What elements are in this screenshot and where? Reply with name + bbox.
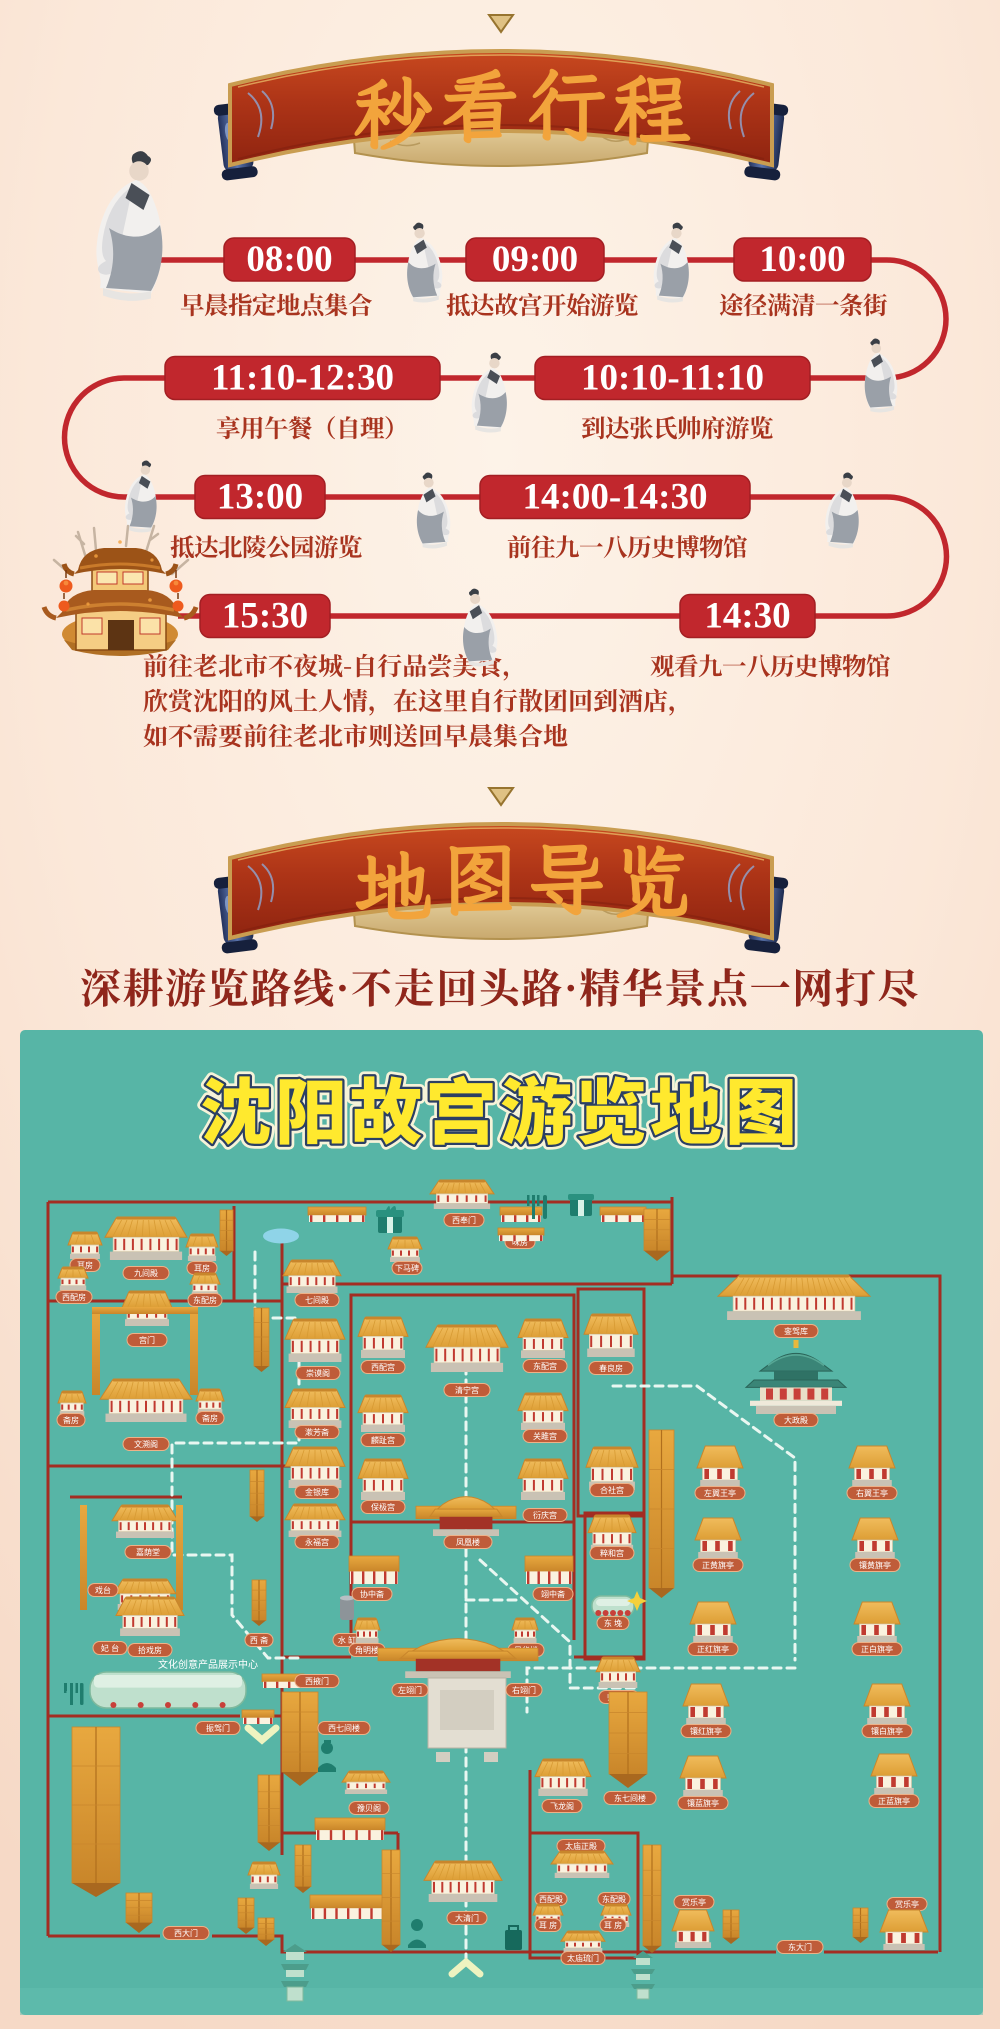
svg-text:11:10-12:30: 11:10-12:30	[211, 358, 394, 399]
svg-text:09:00: 09:00	[492, 239, 578, 280]
svg-text:崇谟阁: 崇谟阁	[306, 1368, 330, 1378]
svg-text:衍庆宫: 衍庆宫	[533, 1510, 557, 1520]
svg-text:太庙琉门: 太庙琉门	[567, 1953, 599, 1963]
svg-text:西配宫: 西配宫	[371, 1362, 395, 1372]
svg-text:永福宫: 永福宫	[305, 1537, 329, 1547]
svg-text:右翼王亭: 右翼王亭	[856, 1488, 888, 1498]
svg-text:春良房: 春良房	[599, 1363, 623, 1373]
svg-text:10:10-11:10: 10:10-11:10	[581, 358, 764, 399]
svg-text:镶白旗亭: 镶白旗亭	[871, 1726, 903, 1736]
svg-text:金银库: 金银库	[305, 1487, 329, 1497]
svg-text:赏乐亭: 赏乐亭	[682, 1897, 706, 1907]
svg-text:西配殿: 西配殿	[539, 1895, 563, 1904]
svg-text:銮驾库: 銮驾库	[784, 1326, 808, 1336]
svg-text:太庙正殿: 太庙正殿	[565, 1841, 597, 1851]
svg-text:保极宫: 保极宫	[371, 1502, 395, 1512]
svg-text:镶红旗亭: 镶红旗亭	[690, 1726, 722, 1736]
svg-text:斋房: 斋房	[202, 1413, 218, 1423]
svg-text:赏乐亭: 赏乐亭	[895, 1899, 919, 1909]
svg-text:东七间楼: 东七间楼	[614, 1793, 646, 1803]
svg-text:镶蓝旗亭: 镶蓝旗亭	[687, 1798, 719, 1808]
svg-text:下马碑: 下马碑	[395, 1263, 419, 1273]
svg-text:九间殿: 九间殿	[134, 1269, 158, 1278]
svg-text:七间殿: 七间殿	[305, 1296, 329, 1305]
svg-text:翊中斋: 翊中斋	[541, 1589, 565, 1599]
svg-text:飞龙阁: 飞龙阁	[550, 1801, 574, 1811]
svg-text:东配宫: 东配宫	[533, 1361, 557, 1371]
svg-text:妃 台: 妃 台	[101, 1643, 119, 1653]
svg-text:正黄旗亭: 正黄旗亭	[702, 1560, 734, 1570]
svg-text:斋房: 斋房	[63, 1415, 79, 1425]
svg-text:耳 房: 耳 房	[539, 1920, 557, 1930]
svg-text:角明楼: 角明楼	[355, 1645, 379, 1655]
svg-text:08:00: 08:00	[246, 239, 332, 280]
svg-text:东配殿: 东配殿	[602, 1894, 626, 1904]
svg-text:麟趾宫: 麟趾宫	[371, 1435, 395, 1445]
svg-text:合社宫: 合社宫	[600, 1485, 624, 1495]
svg-text:漱芳斋: 漱芳斋	[305, 1427, 329, 1437]
svg-text:耳 房: 耳 房	[604, 1920, 622, 1930]
svg-text:东 堍: 东 堍	[604, 1618, 622, 1628]
svg-text:镶黄旗亭: 镶黄旗亭	[859, 1560, 891, 1570]
svg-text:正白旗亭: 正白旗亭	[861, 1644, 893, 1654]
svg-text:大清门: 大清门	[455, 1913, 479, 1923]
svg-text:西 斋: 西 斋	[250, 1635, 268, 1645]
svg-text:拾戏房: 拾戏房	[138, 1645, 162, 1655]
svg-text:10:00: 10:00	[759, 239, 845, 280]
svg-text:戏台: 戏台	[95, 1585, 111, 1595]
svg-text:正蓝旗亭: 正蓝旗亭	[878, 1796, 910, 1806]
svg-text:西奉门: 西奉门	[452, 1215, 476, 1225]
svg-text:15:30: 15:30	[222, 596, 308, 637]
svg-text:西大门: 西大门	[174, 1928, 198, 1938]
svg-text:东配房: 东配房	[193, 1295, 217, 1305]
svg-text:文溯阁: 文溯阁	[134, 1439, 158, 1449]
svg-text:振驾门: 振驾门	[206, 1723, 230, 1733]
svg-text:西七间楼: 西七间楼	[328, 1723, 360, 1733]
svg-text:正红旗亭: 正红旗亭	[697, 1644, 729, 1654]
svg-text:东大门: 东大门	[788, 1942, 812, 1952]
svg-text:协中斋: 协中斋	[360, 1589, 384, 1599]
svg-text:13:00: 13:00	[217, 477, 303, 518]
svg-text:右翊门: 右翊门	[512, 1685, 536, 1695]
svg-text:14:30: 14:30	[704, 596, 790, 637]
svg-text:14:00-14:30: 14:00-14:30	[523, 477, 708, 518]
svg-text:凤凰楼: 凤凰楼	[456, 1537, 480, 1547]
svg-text:嘉荫堂: 嘉荫堂	[136, 1547, 160, 1557]
svg-text:左翊门: 左翊门	[398, 1685, 422, 1695]
svg-text:豫贝阁: 豫贝阁	[357, 1803, 381, 1813]
svg-text:左翼王亭: 左翼王亭	[704, 1488, 736, 1498]
svg-text:文化创意产品展示中心: 文化创意产品展示中心	[158, 1658, 258, 1671]
svg-text:粹和宫: 粹和宫	[600, 1548, 624, 1558]
svg-text:西掖门: 西掖门	[305, 1676, 329, 1686]
svg-text:耳房: 耳房	[194, 1263, 210, 1273]
svg-text:清宁宫: 清宁宫	[455, 1385, 479, 1395]
svg-text:西配房: 西配房	[62, 1292, 86, 1302]
svg-text:关雎宫: 关雎宫	[533, 1431, 557, 1441]
svg-text:大政殿: 大政殿	[784, 1415, 808, 1425]
svg-text:宫门: 宫门	[139, 1335, 155, 1345]
